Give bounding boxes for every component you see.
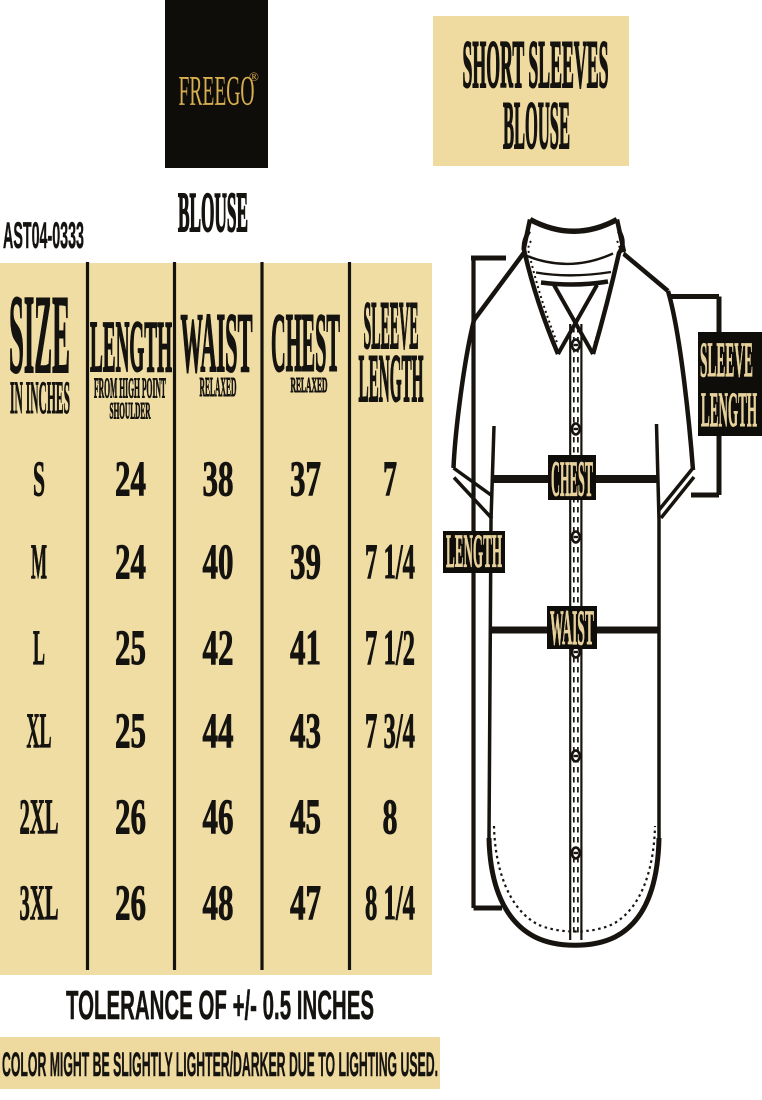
svg-text:3XL: 3XL — [20, 874, 59, 930]
svg-text:BLOUSE: BLOUSE — [503, 87, 570, 163]
svg-text:S: S — [33, 450, 45, 506]
svg-text:RELAXED: RELAXED — [200, 371, 237, 402]
svg-text:40: 40 — [203, 533, 234, 589]
svg-text:7 1/2: 7 1/2 — [365, 619, 415, 675]
svg-text:LENGTH: LENGTH — [359, 340, 424, 416]
svg-text:TOLERANCE OF +/- 0.5 INCHES: TOLERANCE OF +/- 0.5 INCHES — [66, 982, 374, 1028]
svg-text:48: 48 — [203, 874, 234, 930]
svg-text:IN INCHES: IN INCHES — [10, 372, 70, 424]
svg-text:RELAXED: RELAXED — [291, 373, 328, 397]
svg-text:L: L — [33, 619, 45, 675]
svg-text:7: 7 — [383, 450, 397, 506]
svg-text:7 3/4: 7 3/4 — [365, 702, 415, 758]
svg-text:26: 26 — [115, 788, 146, 844]
svg-text:41: 41 — [290, 619, 321, 675]
svg-text:37: 37 — [290, 450, 321, 506]
svg-text:8: 8 — [383, 788, 398, 844]
svg-text:XL: XL — [27, 702, 52, 758]
svg-text:25: 25 — [115, 619, 146, 675]
svg-text:38: 38 — [203, 450, 234, 506]
svg-text:24: 24 — [115, 450, 146, 506]
svg-text:WAIST: WAIST — [550, 599, 594, 655]
svg-text:24: 24 — [115, 533, 146, 589]
svg-text:COLOR MIGHT BE SLIGHTLY LIGHTE: COLOR MIGHT BE SLIGHTLY LIGHTER/DARKER D… — [2, 1046, 438, 1084]
svg-text:CHEST: CHEST — [551, 452, 593, 508]
svg-text:®: ® — [249, 69, 259, 84]
svg-text:25: 25 — [115, 702, 146, 758]
svg-text:39: 39 — [290, 533, 321, 589]
svg-text:2XL: 2XL — [20, 788, 59, 844]
svg-text:7 1/4: 7 1/4 — [365, 533, 415, 589]
svg-text:47: 47 — [290, 874, 321, 930]
svg-text:LENGTH: LENGTH — [446, 525, 502, 578]
svg-text:42: 42 — [203, 619, 234, 675]
svg-text:LENGTH: LENGTH — [701, 381, 757, 437]
svg-text:45: 45 — [290, 788, 321, 844]
svg-text:SHOULDER: SHOULDER — [110, 399, 151, 425]
svg-text:46: 46 — [203, 788, 234, 844]
svg-text:BLOUSE: BLOUSE — [178, 182, 248, 244]
svg-text:43: 43 — [290, 702, 321, 758]
svg-text:8 1/4: 8 1/4 — [365, 874, 415, 930]
svg-text:44: 44 — [203, 702, 234, 758]
svg-text:AST04-0333: AST04-0333 — [3, 215, 84, 256]
svg-text:SLEEVE: SLEEVE — [700, 331, 753, 387]
svg-text:26: 26 — [115, 874, 146, 930]
svg-text:FREEGO: FREEGO — [179, 69, 255, 115]
svg-text:M: M — [31, 533, 47, 589]
